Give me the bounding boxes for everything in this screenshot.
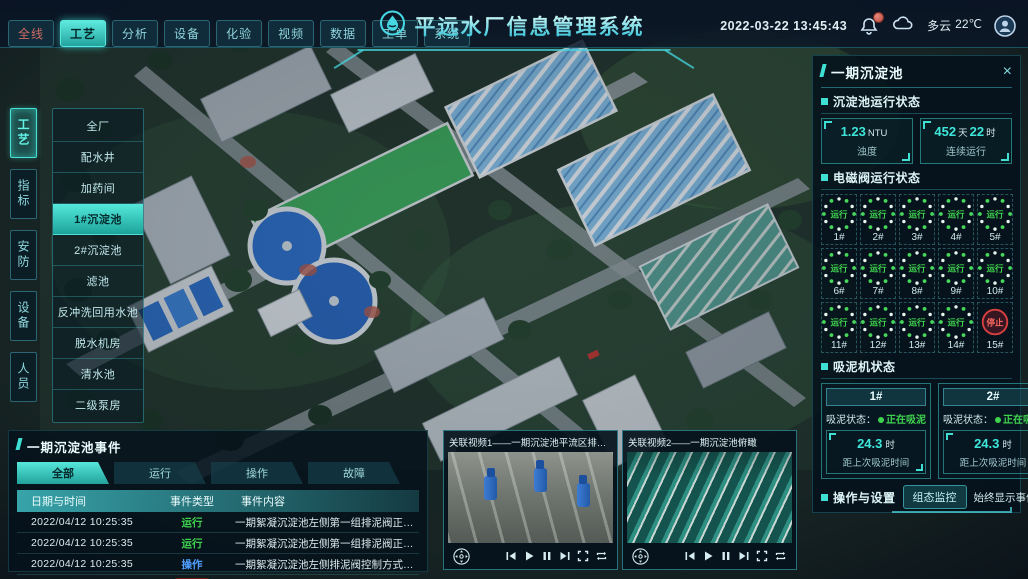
valve-label: 12# [861, 340, 895, 351]
weather-temperature: 22℃ [955, 17, 982, 34]
video-title: 关联视频1——一期沉淀池平流区排泥管廊 [444, 431, 617, 452]
process-menu-label: 反冲洗回用水池 [58, 307, 139, 319]
valve-status-cell: 运行 2# [860, 194, 896, 245]
top-right-cluster: 2022-03-22 13:45:43 多云 22℃ [720, 14, 1016, 37]
play-icon[interactable] [699, 548, 717, 564]
process-menu-label: 全厂 [87, 121, 110, 133]
skip-forward-icon[interactable] [735, 548, 753, 564]
stat-value: 452天22时 [923, 123, 1009, 141]
valve-ring-indicator: 运行 [900, 251, 934, 285]
scraper-status-line: 吸泥状态：正在吸泥 [943, 411, 1028, 426]
video-controls [623, 543, 796, 569]
events-filter-tabs: 全部 运行 操作 故障 [17, 462, 419, 484]
skip-forward-icon[interactable] [556, 548, 574, 564]
stat-label: 浊度 [824, 143, 910, 158]
valve-ring-indicator: 运行 [861, 251, 895, 285]
events-tab-label: 全部 [52, 468, 74, 480]
valve-ring-indicator: 运行 [978, 197, 1012, 231]
pause-icon[interactable] [717, 548, 735, 564]
valve-label: 15# [978, 340, 1012, 351]
fullscreen-icon[interactable] [574, 548, 592, 564]
stat-card: 452天22时 连续运行 [920, 118, 1012, 164]
svg-text:运行: 运行 [908, 263, 926, 273]
valve-ring-indicator: 停止 [978, 305, 1012, 339]
valves-section-title: 电磁阀运行状态 [821, 169, 1012, 190]
events-filter-tab[interactable]: 全部 [17, 462, 109, 484]
process-menu-label: 二级泵房 [75, 400, 121, 412]
col-datetime: 日期与时间 [17, 493, 149, 509]
nav-tab-label: 全线 [18, 27, 44, 41]
event-row[interactable]: 2022/04/12 10:25:35 运行 一期絮凝沉淀池左侧第一组排泥阀正在… [17, 533, 419, 554]
nav-tab[interactable]: 设备 [164, 20, 210, 47]
process-menu-item[interactable]: 加药间 [53, 173, 143, 204]
svg-text:运行: 运行 [947, 209, 965, 219]
notification-bell-icon[interactable] [859, 16, 879, 36]
sidebar-tab-label: 安防 [16, 240, 30, 270]
valve-status-cell: 运行 7# [860, 248, 896, 299]
pan-control-icon[interactable] [629, 546, 652, 567]
notification-badge [873, 12, 884, 23]
nav-tab-label: 视频 [278, 27, 304, 41]
valve-label: 2# [861, 232, 895, 243]
fullscreen-icon[interactable] [753, 548, 771, 564]
sidebar-tab[interactable]: 人员 [10, 352, 37, 402]
event-time: 2022/04/12 10:25:35 [17, 516, 149, 528]
skip-back-icon[interactable] [681, 548, 699, 564]
scraper-name: 1# [826, 388, 926, 406]
show-events-label: 始终显示事件： [974, 490, 1028, 505]
valve-status-cell: 运行 12# [860, 302, 896, 353]
svg-text:运行: 运行 [869, 209, 887, 219]
sidebar-tab[interactable]: 设备 [10, 291, 37, 341]
event-type-badge: 运行 [149, 515, 235, 530]
svg-text:运行: 运行 [908, 209, 926, 219]
valve-ring-indicator: 运行 [822, 251, 856, 285]
events-table-body: 2022/04/12 10:25:35 运行 一期絮凝沉淀池左侧第一组排泥阀正在… [17, 512, 419, 579]
valve-ring-indicator: 运行 [939, 251, 973, 285]
process-menu-label: 配水井 [81, 152, 116, 164]
scraper-value-box: 24.3时 距上次吸泥时间 [826, 430, 926, 474]
sidebar-tab[interactable]: 安防 [10, 230, 37, 280]
stat-value: 1.23NTU [824, 123, 910, 141]
valve-status-cell: 运行 3# [899, 194, 935, 245]
video-panel: 关联视频2——一期沉淀池俯瞰 [622, 430, 797, 570]
scraper-cards: 1# 吸泥状态：正在吸泥 24.3时 距上次吸泥时间 2# 吸泥状态：正在吸泥 [821, 383, 1012, 479]
events-table-header: 日期与时间 事件类型 事件内容 [17, 490, 419, 512]
event-time: 2022/04/12 10:25:35 [17, 558, 149, 570]
page-title: 平远水厂信息管理系统 [415, 11, 645, 41]
stat-label: 连续运行 [923, 143, 1009, 158]
process-menu-item[interactable]: 2#沉淀池 [53, 235, 143, 266]
events-filter-tab[interactable]: 运行 [114, 462, 206, 484]
scraper-caption: 距上次吸泥时间 [828, 455, 924, 469]
weather-condition: 多云 [927, 17, 951, 34]
scraper-caption: 距上次吸泥时间 [945, 455, 1028, 469]
operations-title: 操作与设置 [821, 489, 896, 506]
skip-back-icon[interactable] [502, 548, 520, 564]
scraper-section-title: 吸泥机状态 [821, 358, 1012, 379]
events-tab-label: 运行 [149, 468, 171, 480]
video-feed[interactable] [627, 452, 792, 543]
scada-monitor-button[interactable]: 组态监控 [903, 485, 967, 509]
event-content: 一期絮凝沉淀池左侧第一组排泥阀正在排泥 [235, 536, 419, 551]
event-time: 2022/04/12 10:25:35 [17, 537, 149, 549]
nav-tab[interactable]: 视频 [268, 20, 314, 47]
events-filter-tab[interactable]: 操作 [211, 462, 303, 484]
datetime: 2022-03-22 13:45:43 [720, 19, 847, 33]
valve-ring-indicator: 运行 [939, 305, 973, 339]
valve-ring-indicator: 运行 [939, 197, 973, 231]
video-panel: 关联视频1——一期沉淀池平流区排泥管廊 [443, 430, 618, 570]
valve-status-cell: 运行 4# [938, 194, 974, 245]
event-row[interactable]: 2022/04/12 10:25:35 故障 一期絮凝沉淀池左侧第二组排泥阀启动… [17, 575, 419, 579]
valve-label: 5# [978, 232, 1012, 243]
process-menu-item[interactable]: 反冲洗回用水池 [53, 297, 143, 328]
status-dot-icon [995, 417, 1001, 423]
svg-text:运行: 运行 [947, 317, 965, 327]
events-tab-label: 操作 [246, 468, 268, 480]
process-menu-item[interactable]: 1#沉淀池 [53, 204, 143, 235]
status-dot-icon [878, 417, 884, 423]
operations-section: 操作与设置 组态监控 始终显示事件： [821, 485, 1012, 509]
event-type-badge: 操作 [149, 557, 235, 572]
video-controls [444, 543, 617, 569]
user-avatar[interactable] [994, 15, 1016, 37]
valve-label: 7# [861, 286, 895, 297]
svg-text:运行: 运行 [869, 263, 887, 273]
video-strip: 关联视频1——一期沉淀池平流区排泥管廊 [443, 430, 797, 570]
valve-status-cell: 运行 14# [938, 302, 974, 353]
valve-status-cell: 运行 8# [899, 248, 935, 299]
dashboard-root: 全线 工艺 分析 设备 化验 视频 [0, 0, 1028, 579]
process-menu-label: 加药间 [81, 183, 116, 195]
svg-text:运行: 运行 [947, 263, 965, 273]
nav-tab-label: 工艺 [70, 27, 96, 41]
event-row[interactable]: 2022/04/12 10:25:35 操作 一期絮凝沉淀池左侧排泥阀控制方式切… [17, 554, 419, 575]
run-status-stats: 1.23NTU 浊度 452天22时 连续运行 [821, 118, 1012, 164]
nav-tab-label: 化验 [226, 27, 252, 41]
run-status-section-title: 沉淀池运行状态 [821, 93, 1012, 114]
svg-text:运行: 运行 [869, 317, 887, 327]
process-menu-label: 滤池 [87, 276, 110, 288]
valve-label: 10# [978, 286, 1012, 297]
svg-text:运行: 运行 [986, 209, 1004, 219]
events-filter-tab[interactable]: 故障 [308, 462, 400, 484]
sidebar-tab[interactable]: 指标 [10, 169, 37, 219]
valve-label: 1# [822, 232, 856, 243]
valve-status-cell: 运行 5# [977, 194, 1013, 245]
process-menu-item[interactable]: 脱水机房 [53, 328, 143, 359]
event-content: 一期絮凝沉淀池左侧排泥阀控制方式切换为手动 [235, 557, 419, 572]
process-menu-label: 2#沉淀池 [74, 245, 122, 257]
process-menu-item[interactable]: 滤池 [53, 266, 143, 297]
svg-text:运行: 运行 [830, 317, 848, 327]
event-row[interactable]: 2022/04/12 10:25:35 运行 一期絮凝沉淀池左侧第一组排泥阀正在… [17, 512, 419, 533]
valve-status-cell: 停止 15# [977, 302, 1013, 353]
valve-ring-indicator: 运行 [861, 197, 895, 231]
stat-card: 1.23NTU 浊度 [821, 118, 913, 164]
valve-status-cell: 运行 1# [821, 194, 857, 245]
valve-label: 6# [822, 286, 856, 297]
valve-ring-indicator: 运行 [822, 305, 856, 339]
scraper-name: 2# [943, 388, 1028, 406]
sidebar-tab-label: 人员 [16, 362, 30, 392]
events-panel: 一期沉淀池事件 全部 运行 操作 故障 日期与时间 [8, 430, 428, 572]
valve-ring-indicator: 运行 [978, 251, 1012, 285]
valve-ring-indicator: 运行 [861, 305, 895, 339]
events-tab-label: 故障 [343, 468, 365, 480]
svg-text:运行: 运行 [830, 209, 848, 219]
weather-cloud-icon [891, 14, 915, 37]
col-type: 事件类型 [149, 493, 235, 509]
left-tab-strip: 工艺 指标 安防 设备 人员 [10, 108, 37, 402]
valve-label: 3# [900, 232, 934, 243]
valve-label: 13# [900, 340, 934, 351]
detail-panel-title: 一期沉淀池 [821, 62, 904, 82]
scraper-card: 1# 吸泥状态：正在吸泥 24.3时 距上次吸泥时间 [821, 383, 931, 479]
scraper-card: 2# 吸泥状态：正在吸泥 24.3时 距上次吸泥时间 [938, 383, 1028, 479]
sidebar-tab-label: 指标 [16, 179, 30, 209]
valve-label: 4# [939, 232, 973, 243]
loop-icon[interactable] [592, 548, 611, 564]
valve-label: 8# [900, 286, 934, 297]
events-title: 一期沉淀池事件 [17, 437, 419, 456]
sidebar-tab-label: 工艺 [16, 118, 30, 148]
close-icon[interactable]: × [1003, 64, 1012, 80]
process-submenu: 全厂 配水井 加药间 1#沉淀池 2#沉淀池 滤池 反冲洗回用水池 [52, 108, 144, 423]
panel-corner-decoration [892, 507, 1012, 513]
video-feed[interactable] [448, 452, 613, 543]
nav-tab-label: 设备 [174, 27, 200, 41]
video-title: 关联视频2——一期沉淀池俯瞰 [623, 431, 796, 452]
nav-tab-label: 分析 [122, 27, 148, 41]
valve-label: 11# [822, 340, 856, 351]
col-content: 事件内容 [235, 493, 419, 509]
process-menu-label: 清水池 [81, 369, 116, 381]
process-menu-item[interactable]: 清水池 [53, 359, 143, 390]
detail-panel: 一期沉淀池 × 沉淀池运行状态 1.23NTU 浊度 452天22时 连续运行 [812, 55, 1021, 513]
process-menu-label: 脱水机房 [75, 338, 121, 350]
nav-tab[interactable]: 工艺 [60, 20, 106, 47]
nav-tab-label: 数据 [330, 27, 356, 41]
process-menu-item[interactable]: 二级泵房 [53, 390, 143, 420]
svg-text:运行: 运行 [908, 317, 926, 327]
detail-panel-header: 一期沉淀池 × [821, 62, 1012, 88]
valve-label: 9# [939, 286, 973, 297]
valve-status-cell: 运行 11# [821, 302, 857, 353]
valve-grid: 运行 1# [821, 194, 1012, 353]
valve-label: 14# [939, 340, 973, 351]
valve-status-cell: 运行 10# [977, 248, 1013, 299]
scraper-value-box: 24.3时 距上次吸泥时间 [943, 430, 1028, 474]
event-content: 一期絮凝沉淀池左侧第一组排泥阀正在排泥 [235, 515, 419, 530]
svg-text:停止: 停止 [986, 317, 1004, 327]
process-menu-item[interactable]: 全厂 [53, 111, 143, 142]
valve-ring-indicator: 运行 [900, 197, 934, 231]
valve-status-cell: 运行 9# [938, 248, 974, 299]
top-bar: 全线 工艺 分析 设备 化验 视频 [0, 0, 1028, 48]
event-type-badge: 运行 [149, 536, 235, 551]
pan-control-icon[interactable] [450, 546, 473, 567]
app-header: 平远水厂信息管理系统 [358, 6, 671, 51]
nav-tab[interactable]: 全线 [8, 20, 54, 47]
nav-tab[interactable]: 分析 [112, 20, 158, 47]
scraper-status-line: 吸泥状态：正在吸泥 [826, 411, 926, 426]
weather-text: 多云 22℃ [927, 17, 982, 34]
valve-ring-indicator: 运行 [822, 197, 856, 231]
sidebar-tab[interactable]: 工艺 [10, 108, 37, 158]
process-menu-item[interactable]: 配水井 [53, 142, 143, 173]
svg-text:运行: 运行 [986, 263, 1004, 273]
app-logo-icon [380, 10, 406, 41]
sidebar-tab-label: 设备 [16, 301, 30, 331]
play-icon[interactable] [520, 548, 538, 564]
pause-icon[interactable] [538, 548, 556, 564]
valve-status-cell: 运行 6# [821, 248, 857, 299]
loop-icon[interactable] [771, 548, 790, 564]
process-menu-label: 1#沉淀池 [74, 214, 122, 226]
nav-tab[interactable]: 化验 [216, 20, 262, 47]
valve-ring-indicator: 运行 [900, 305, 934, 339]
valve-status-cell: 运行 13# [899, 302, 935, 353]
svg-text:运行: 运行 [830, 263, 848, 273]
